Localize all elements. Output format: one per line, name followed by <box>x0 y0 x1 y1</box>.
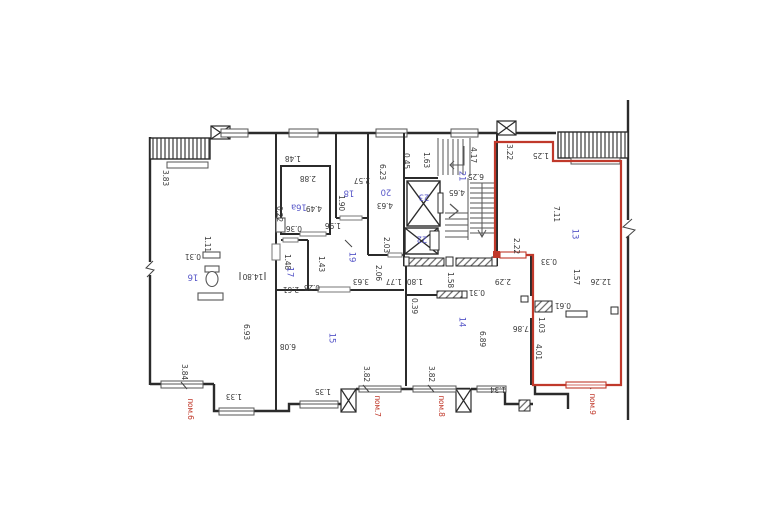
room-number-label: 13 <box>570 229 579 239</box>
dimension-label: 1.35 <box>315 387 331 395</box>
dimension-label: 7.86 <box>513 324 529 332</box>
dimension-label: 6.93 <box>242 324 250 340</box>
dimension-label: 1.03 <box>537 317 545 333</box>
dimension-label: 1.90 <box>337 195 345 211</box>
dimension-label: 1.96 <box>325 221 341 229</box>
dimension-label: 6.08 <box>280 342 296 350</box>
room-number-label: 19 <box>347 252 356 262</box>
dimension-label: 1.58 <box>446 272 454 288</box>
dimension-label: 6.89 <box>478 331 486 347</box>
dimension-label: 2.88 <box>300 174 316 182</box>
room-number-label: 20 <box>381 187 391 196</box>
dimension-label: 0.31 <box>185 252 201 260</box>
dimension-label: 1.25 <box>533 151 549 159</box>
dimension-label: 2.29 <box>495 277 511 285</box>
dimension-label: 1.43 <box>317 256 325 272</box>
dimension-label: 3.82 <box>362 366 370 382</box>
room-number-label: 14 <box>457 317 466 327</box>
dimension-label: 0.39 <box>410 298 418 314</box>
dimension-label: 4.01 <box>534 344 542 360</box>
dimension-label: 3.22 <box>505 144 513 160</box>
dimension-label: 2.61 <box>283 285 299 293</box>
room-number-label: 17 <box>285 267 294 277</box>
unit-label: пом.7 <box>373 395 381 416</box>
dimension-label: 3.82 <box>427 366 435 382</box>
dimension-label: 2.06 <box>374 265 382 281</box>
room-number-label: 18 <box>344 188 354 197</box>
dimension-label: 2.03 <box>382 237 390 253</box>
dimension-label: 0.22 <box>275 206 283 222</box>
dimension-label: 0.36 <box>286 224 302 232</box>
dimension-label: 0.23 <box>304 283 320 291</box>
dimension-label: 1.80 <box>407 277 423 285</box>
room-number-label: 16 <box>188 272 198 281</box>
plan-labels: 3.831.481.110.3114.806.933.841.336.081.3… <box>0 0 770 510</box>
unit-label: пом.9 <box>588 393 596 414</box>
floor-plan-image: 3.831.481.110.3114.806.933.841.336.081.3… <box>0 0 770 510</box>
dimension-label: 4.65 <box>449 188 465 196</box>
dimension-label: 3.84 <box>180 364 188 380</box>
room-number-label: 21 <box>457 171 466 181</box>
dimension-label: 6.23 <box>378 164 386 180</box>
dimension-label: 1.48 <box>285 154 301 162</box>
dimension-label: 1.57 <box>572 269 580 285</box>
room-number-label: 15 <box>327 333 336 343</box>
dimension-label: 6.25 <box>468 172 484 180</box>
dimension-label: 0.61 <box>555 301 571 309</box>
dimension-label: 12.26 <box>591 277 611 285</box>
room-number-label: 16а <box>291 202 306 211</box>
unit-label: пом.6 <box>186 398 194 419</box>
dimension-label: 1.63 <box>422 152 430 168</box>
dimension-label: 1.11 <box>203 236 211 252</box>
dimension-label: 7.11 <box>552 206 560 222</box>
room-number-label: 23 <box>419 192 429 201</box>
dimension-label: 0.31 <box>469 288 485 296</box>
dimension-label: 4.17 <box>469 147 477 163</box>
dimension-label: 4.63 <box>377 201 393 209</box>
dimension-label: 3.83 <box>161 170 169 186</box>
dimension-label: 0.45 <box>402 153 410 169</box>
dimension-label: 1.34 <box>490 385 506 393</box>
dimension-label: 1.33 <box>226 392 242 400</box>
dimension-label: 14.80 <box>243 272 263 280</box>
dimension-label: 2.57 <box>354 176 370 184</box>
dimension-label: 2.22 <box>512 238 520 254</box>
room-number-label: 22 <box>417 234 427 243</box>
dimension-label: 1.77 <box>386 277 402 285</box>
dimension-label: 3.63 <box>353 277 369 285</box>
dimension-label: 0.33 <box>541 257 557 265</box>
dimension-label: 4.49 <box>306 204 322 212</box>
unit-label: пом.8 <box>437 395 445 416</box>
